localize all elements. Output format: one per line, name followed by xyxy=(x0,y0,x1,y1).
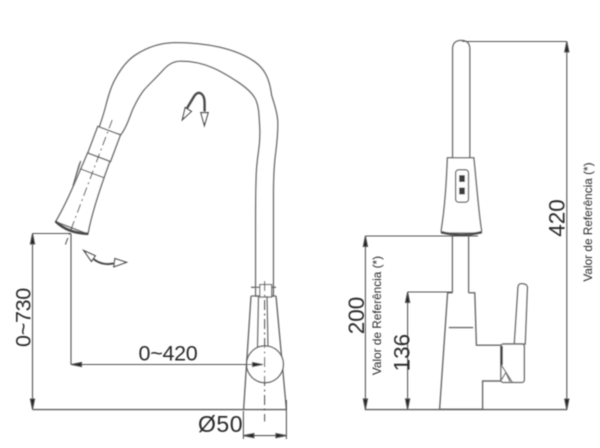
svg-text:200: 200 xyxy=(344,297,369,335)
svg-text:0~420: 0~420 xyxy=(139,342,198,366)
svg-text:Valor de Referência (*): Valor de Referência (*) xyxy=(370,256,384,375)
svg-text:Ø50: Ø50 xyxy=(198,411,243,437)
svg-text:Valor de Referência (*): Valor de Referência (*) xyxy=(581,162,595,281)
svg-text:0~730: 0~730 xyxy=(12,288,36,347)
svg-text:420: 420 xyxy=(545,199,570,237)
svg-text:136: 136 xyxy=(390,334,415,372)
